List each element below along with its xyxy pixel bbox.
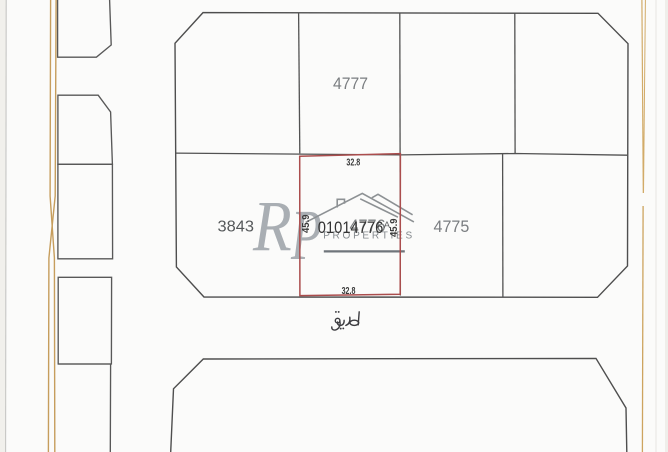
svg-text:01014776: 01014776 [318, 219, 384, 237]
svg-text:32.8: 32.8 [346, 158, 360, 169]
svg-text:4777: 4777 [333, 75, 368, 93]
svg-text:45.9: 45.9 [389, 218, 400, 237]
svg-text:32.8: 32.8 [342, 286, 356, 297]
svg-text:R: R [252, 186, 292, 266]
svg-text:4775: 4775 [434, 218, 470, 236]
svg-text:3843: 3843 [218, 218, 255, 235]
svg-text:45.9: 45.9 [301, 214, 312, 233]
